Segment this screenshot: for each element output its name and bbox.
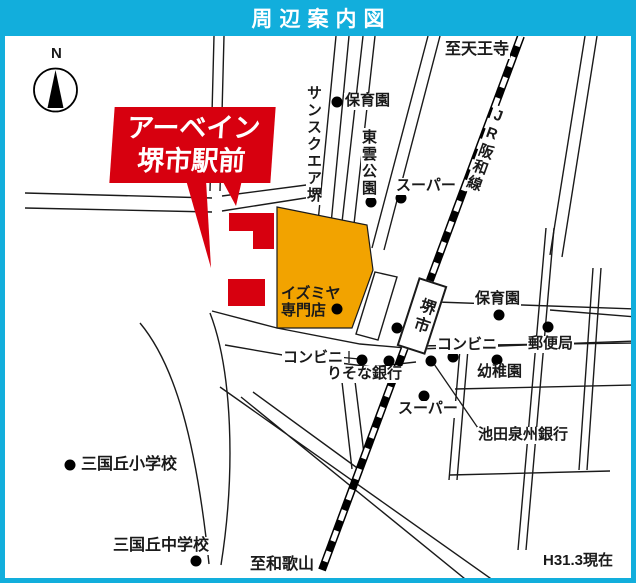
label-compass-n: N (50, 46, 63, 63)
label-risona-bank: りそな銀行 (326, 366, 403, 383)
map-window: 周辺案内図 (0, 0, 636, 583)
property-building-lower (228, 279, 265, 306)
label-yubinkyoku: 郵便局 (527, 336, 574, 353)
label-sunsquare-sakai: サンスクエア堺 (306, 84, 321, 205)
property-building-upper (229, 213, 274, 249)
label-hoikuen-top: 保育園 (344, 93, 391, 110)
conbini-left-dot (357, 355, 368, 366)
label-shinonome-park: 東雲公園 (361, 128, 376, 198)
label-map-note: H31.3現在 (542, 553, 614, 570)
ikeda-bank-dot (426, 356, 437, 367)
label-izumiya-senmonten: イズミヤ 専門店 (280, 286, 342, 320)
hoikuen-top-dot (332, 97, 343, 108)
yubinkyoku-dot (543, 322, 554, 333)
compass-icon (34, 69, 77, 112)
page-title: 周辺案内図 (245, 3, 392, 33)
property-banner-line1: アーベイン (126, 112, 262, 145)
shinonome-dot (366, 197, 377, 208)
label-conbini-right: コンビニ (436, 337, 498, 354)
label-to-wakayama: 至和歌山 (249, 556, 315, 574)
label-mikunigaoka-junior-high: 三国丘中学校 (112, 537, 210, 555)
label-hoikuen-right: 保育園 (474, 291, 521, 308)
property-banner: アーベイン 堺市駅前 (109, 107, 275, 183)
property-banner-line2: 堺市駅前 (136, 145, 246, 178)
area-map: アーベイン 堺市駅前 堺市 N至天王寺JR阪和線保育園サンスクエア堺東雲公園スー… (5, 36, 631, 578)
banner-pointer-long (186, 180, 211, 268)
label-to-tennoji: 至天王寺 (444, 41, 510, 59)
label-youchien: 幼稚園 (476, 364, 523, 381)
label-mikunigaoka-elementary: 三国丘小学校 (80, 456, 178, 474)
label-super-top: スーパー (395, 178, 457, 195)
ikeda-bank-leader (434, 364, 480, 431)
label-super-lower: スーパー (397, 401, 459, 418)
label-ikeda-senshu-bank: 池田泉州銀行 (477, 427, 569, 444)
junior-high-dot (191, 556, 202, 567)
elementary-dot (65, 460, 76, 471)
title-bar: 周辺案内図 (5, 0, 631, 36)
hoikuen-right-dot (494, 310, 505, 321)
banner-pointer-short (222, 180, 242, 206)
